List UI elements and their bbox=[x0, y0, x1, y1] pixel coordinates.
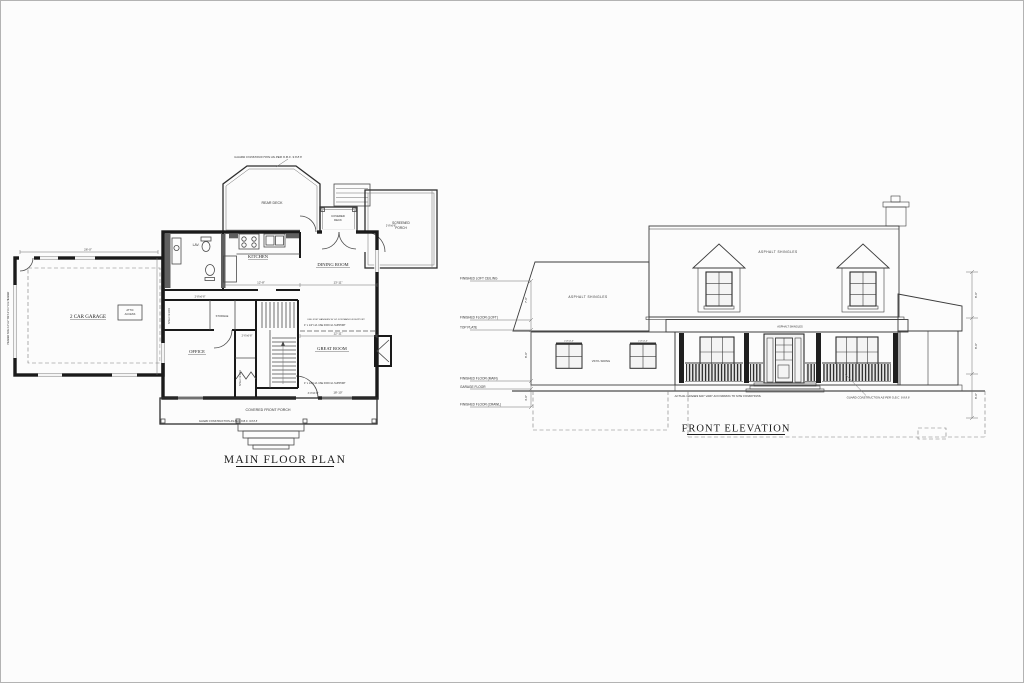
main-wall bbox=[675, 332, 900, 392]
plan-labels: GUARD CONSTRUCTION AS PER O.B.C. 9.8.8.8… bbox=[7, 155, 411, 467]
chimney bbox=[883, 196, 909, 226]
drawing-sheet: GUARD CONSTRUCTION AS PER O.B.C. 9.8.8.8… bbox=[0, 0, 1024, 683]
level-loft-ceiling: FINISHED LOFT CEILING bbox=[460, 277, 498, 281]
room-lav: LAV. bbox=[193, 243, 200, 247]
note-lvl-b: 4" x 1/4" LVL USE FOR LVL SUPPORT bbox=[304, 382, 346, 385]
label-attic-1: ATTIC bbox=[126, 308, 133, 312]
room-kitchen: KITCHEN bbox=[248, 254, 269, 259]
floor-plan-title: MAIN FLOOR PLAN bbox=[224, 454, 346, 466]
door-label-c: 3'-0"x6'-8" bbox=[308, 392, 319, 395]
dormer-left bbox=[693, 244, 745, 312]
level-main-floor: FINISHED FLOOR (MAIN) bbox=[460, 377, 498, 381]
level-top-plate: TOP PLATE bbox=[460, 326, 477, 330]
dim-left-3: 4'-0" bbox=[524, 395, 528, 401]
right-dimensions: 8'-0" 8'-0" 8'-0" bbox=[966, 270, 978, 420]
label-shelf-rod-b: SHELF & ROD bbox=[239, 370, 242, 386]
door-label-porch: 2'-8"x6'-8" bbox=[386, 226, 396, 228]
room-rear-deck: REAR DECK bbox=[262, 201, 284, 205]
note-header: HEADER SIZE 2-2"x12" OR 3-2"x10" LVL HEA… bbox=[7, 291, 10, 344]
label-shelf-rod-a: SHELF & ROD bbox=[168, 308, 171, 324]
front-elevation: FINISHED LOFT CEILING FINISHED FLOOR (LO… bbox=[460, 196, 985, 439]
level-loft-floor: FINISHED FLOOR (LOFT) bbox=[460, 316, 498, 320]
dim-right-3: 8'-0" bbox=[974, 393, 978, 399]
room-covered-deck-2: DECK bbox=[334, 218, 342, 222]
elevation-title: FRONT ELEVATION bbox=[682, 424, 791, 435]
note-lvl-a: 4" x 1/4" LVL USE FOR LVL SUPPORT bbox=[304, 324, 346, 327]
dim-left-2: 8'-0" bbox=[524, 352, 528, 358]
room-great: GREAT ROOM bbox=[317, 346, 347, 351]
door-label-b: 2'-6"x6'-8" bbox=[242, 335, 253, 338]
note-guard-top: GUARD CONSTRUCTION AS PER O.B.C. 9.8.8.8 bbox=[234, 155, 302, 159]
dim-garage: 26'-0" bbox=[84, 248, 92, 252]
note-siding: VINYL SIDING bbox=[592, 359, 610, 363]
room-screened-porch-2: PORCH bbox=[395, 226, 407, 230]
dim-right-2: 8'-0" bbox=[974, 343, 978, 349]
label-storage: STORAGE bbox=[216, 314, 229, 318]
note-guard-porch: GUARD CONSTRUCTION AS PER O.B.C. 9.8.8.8 bbox=[199, 419, 258, 423]
floor-plan: GUARD CONSTRUCTION AS PER O.B.C. 9.8.8.8… bbox=[7, 155, 437, 467]
note-shingles-low: ASPHALT SHINGLES bbox=[777, 325, 803, 329]
note-joist: USE JOIST HANGERS W/ LVL FOR MAIN FLR SU… bbox=[307, 318, 365, 321]
dormer-right bbox=[837, 244, 889, 312]
room-dining: DINING ROOM bbox=[317, 262, 348, 267]
level-markers: FINISHED LOFT CEILING FINISHED FLOOR (LO… bbox=[460, 277, 533, 410]
note-shingles-left: ASPHALT SHINGLES bbox=[568, 295, 607, 299]
front-porch-outline bbox=[160, 398, 377, 449]
room-office: OFFICE bbox=[189, 349, 205, 354]
room-front-porch: COVERED FRONT PORCH bbox=[245, 408, 290, 412]
stairs bbox=[262, 302, 296, 388]
dim-left-1: 7'-0" bbox=[524, 297, 528, 303]
note-guard-elev: GUARD CONSTRUCTION AS PER O.B.C. 9.8.8.8 bbox=[847, 396, 910, 400]
level-garage-floor: GARAGE FLOOR bbox=[460, 385, 486, 389]
dim-right-1: 8'-0" bbox=[974, 292, 978, 298]
win-label-a: 2'-8"x4'-0" bbox=[564, 340, 574, 342]
note-grades: ACTUAL GRADES MAY VARY ACCORDING TO SITE… bbox=[674, 394, 762, 398]
dim-kitchen: 12'-8" bbox=[257, 281, 265, 285]
blueprint-canvas: GUARD CONSTRUCTION AS PER O.B.C. 9.8.8.8… bbox=[0, 0, 1024, 683]
screened-porch-elevation bbox=[898, 294, 962, 385]
level-crawl-floor: FINISHED FLOOR (CRAWL) bbox=[460, 403, 501, 407]
door-label-a: 2'-8"x6'-8" bbox=[195, 296, 206, 299]
room-screened-porch-1: SCREENED bbox=[392, 221, 410, 225]
win-label-b: 2'-8"x4'-0" bbox=[638, 340, 648, 342]
dim-great-1: 12'-11" bbox=[333, 332, 342, 336]
rear-deck-outline bbox=[223, 159, 320, 232]
dim-dining: 13'-11" bbox=[333, 281, 342, 285]
dim-great-2: 18'-10" bbox=[333, 391, 342, 395]
label-attic-2: ACCESS bbox=[125, 312, 136, 316]
note-shingles-main: ASPHALT SHINGLES bbox=[758, 250, 797, 254]
